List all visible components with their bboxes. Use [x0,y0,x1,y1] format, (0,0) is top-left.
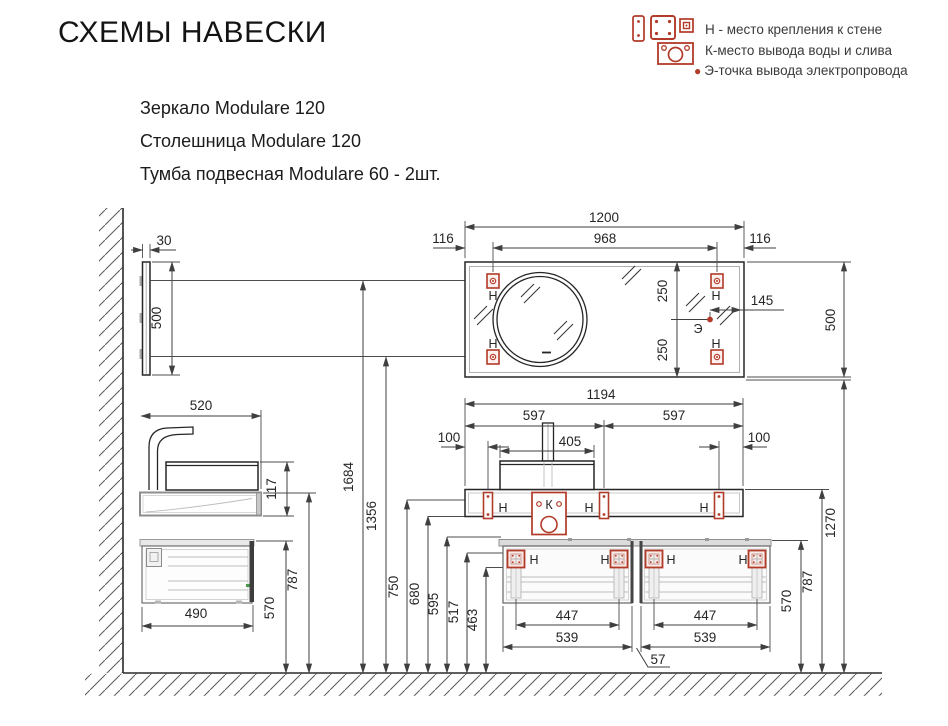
cabinet-seam [631,541,634,603]
dim-worktop-top-height-side: 787 [285,569,300,592]
hanging-scheme-drawing: 30 500 520 117 [0,0,948,726]
mirror-side-view: 30 500 [131,233,180,375]
cabinet-side-bracket [147,549,162,567]
cabinet-mount-marker [646,551,663,568]
dim-basin-height: 117 [264,478,279,500]
dim-worktop-mount-offset: 100 [748,430,771,445]
dim-mirror-height-side: 500 [149,307,164,330]
dim-mirror-total-width: 1200 [589,210,619,225]
dim-mirror-mount-offset: 116 [749,231,771,246]
dim-cabinet-gap: 57 [650,652,665,667]
mirror-mount-marker [711,274,723,288]
mount-label: Н [529,553,538,567]
dim-basin-width: 405 [559,434,582,449]
mount-label: Н [600,553,609,567]
dim-h-worktop-bottom: 680 [407,583,422,606]
worktop-mount-marker [715,493,724,519]
dim-cabinet-top-height-side: 570 [262,597,277,620]
dim-cabinet-width: 539 [556,630,579,645]
water-outlet-label: К [545,498,553,512]
dim-mirror-mount-gap: 250 [655,280,670,303]
mount-label: Н [699,501,708,515]
mount-label: Н [666,553,675,567]
mount-label: Н [488,289,497,303]
wall-hatch [99,208,123,673]
dim-h-worktop-mount: 750 [386,576,401,599]
cabinet-mount-marker [611,551,628,568]
dim-mirror-mount-gap: 250 [655,339,670,362]
mount-label: Н [711,337,720,351]
mirror-front-view: Н Н Н Н 250 250 Э 145 1200 968 [432,210,851,377]
dim-h-worktop-top: 787 [800,571,815,594]
dim-mirror-mount-offset: 116 [432,231,454,246]
dim-worktop-width: 1194 [586,387,616,402]
cabinet-mount-marker [749,551,766,568]
electric-point-dot [707,317,713,323]
cabinet-front-view: Н Н Н Н 447 447 539 539 57 [499,538,771,667]
cabinet-side-top [140,540,254,547]
mount-label: Н [488,337,497,351]
dim-worktop-depth: 520 [190,398,213,413]
worktop-front-view: Н Н Н К 1194 597 597 [438,387,771,535]
cabinet-side-view: 490 570 787 [140,493,316,673]
worktop-mount-marker [484,493,493,519]
dim-h-cabinet-top: 570 [779,590,794,613]
mount-label: Н [738,553,747,567]
dim-worktop-half: 597 [523,408,546,423]
mirror-mount-marker [487,350,499,364]
mount-label: Н [498,501,507,515]
mount-label: Н [711,289,720,303]
hanging-scheme-page: СХЕМЫ НАВЕСКИ Зеркало Modulare 120 Столе… [0,0,948,726]
dim-h-cab-mount-top: 595 [426,593,441,616]
floor-hatch [85,674,882,696]
dim-h-cab-mount-bottom: 463 [465,609,480,632]
basin-side [166,462,258,490]
worktop-mount-marker [600,493,609,519]
cabinet-side-front-edge [250,541,255,602]
cabinet-mount-marker [508,551,525,568]
cabinet-front-top [499,540,771,547]
mount-label: Н [584,501,593,515]
basin-front [500,461,594,490]
mirror-mount-marker [487,274,499,288]
worktop-side-body [140,493,261,516]
water-outlet-marker: К [532,493,566,535]
dim-cabinet-mount-span: 447 [556,608,579,623]
dim-mirror-mount-span: 968 [594,231,617,246]
dim-worktop-half: 597 [663,408,686,423]
dim-worktop-mount-offset: 100 [438,430,461,445]
dim-h-mirror-bottom: 1270 [823,508,838,538]
dim-h-mirror-bottom-mount: 1356 [364,501,379,531]
cabinet-seam [640,541,643,603]
dim-mirror-height: 500 [823,309,838,332]
dim-cabinet-mount-span: 447 [694,608,717,623]
dim-cabinet-width: 539 [694,630,717,645]
worktop-side-view: 520 117 [140,398,294,516]
electric-point-label: Э [694,322,703,336]
mirror-mount-marker [711,350,723,364]
height-dimension-chain-right: 570 787 1270 [745,380,851,673]
dim-h-mirror-top-mount: 1684 [341,461,356,492]
dim-electric-offset: 145 [751,293,774,308]
dim-h-cab-mount: 517 [446,601,461,624]
dim-cabinet-depth: 490 [185,606,208,621]
dim-mirror-depth: 30 [156,233,171,248]
